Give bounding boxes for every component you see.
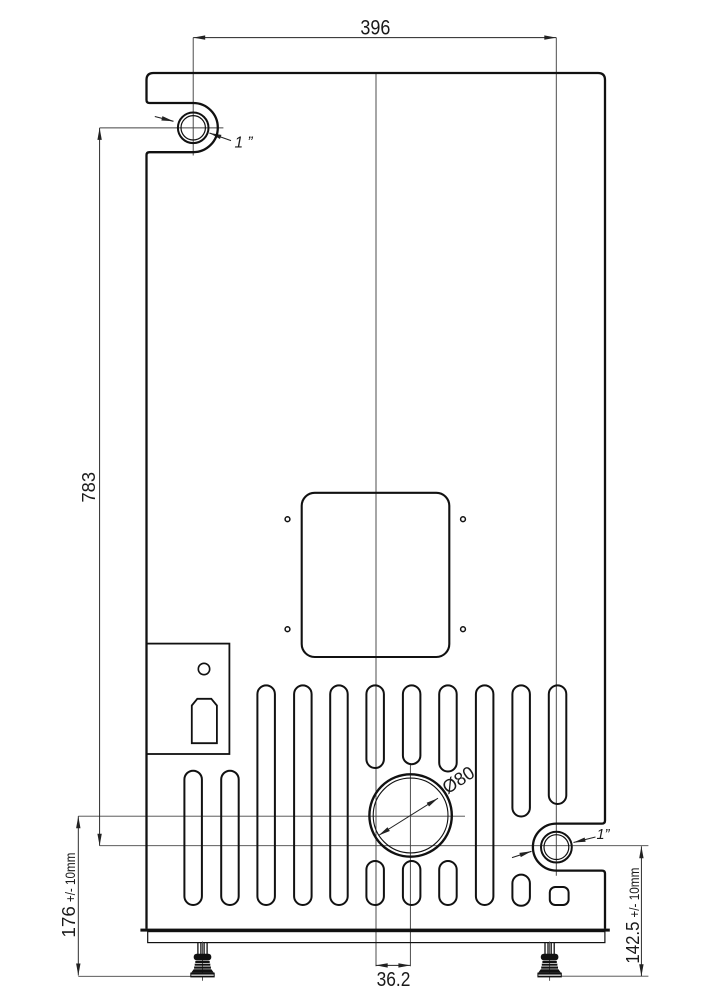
svg-text:36.2: 36.2: [377, 969, 411, 991]
svg-text:396: 396: [360, 16, 390, 39]
svg-text:1”: 1”: [597, 827, 611, 843]
svg-text:783: 783: [78, 472, 99, 503]
svg-text:1 ”: 1 ”: [235, 135, 254, 152]
